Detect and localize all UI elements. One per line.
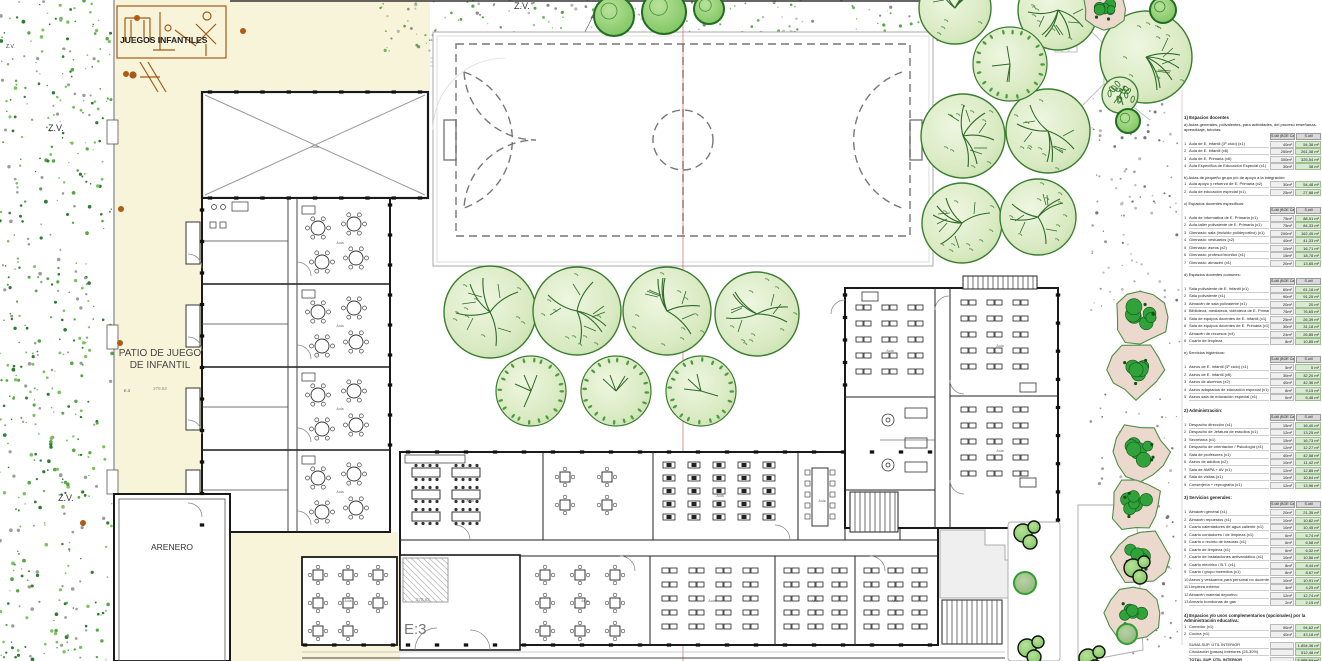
aula-room-label: Aula [336,407,343,411]
table-row: 1Aseos de E. Infantil (3º ciclo) (x1)5m²… [1184,364,1321,371]
table-cell-v2: 32,20 m² [1295,372,1321,379]
table-cell-lbl: Circulación (pasos) interiores (25-30%) [1189,649,1269,656]
table-cell-lbl: Aula de informática de E. Primaria (x1) [1189,215,1269,222]
arenero-label: ARENERO [151,542,193,552]
table-cell-v2: 61,18 m² [1295,286,1321,293]
table-cell-v1: 15m² [1270,437,1294,444]
table-cell-lbl: Aula-taller polivalente de E. Primaria (… [1189,222,1269,229]
zv-label-north: Z.V. [514,1,530,11]
table-header-row: S.útil (BOE Cant.)S.útil [1184,356,1321,363]
zv-label-west-bottom: Z.V. [58,493,74,503]
table-cell-n: 4 [1184,163,1188,170]
table-cell-n: 2 [1184,222,1188,229]
table-section-title: 4) Espacios y/o usos complementarios (op… [1184,613,1321,623]
site-plan-drawing: AulaAulaAulaAulaAulaAulaAulaAulaAulaAula… [0,0,1322,661]
table-cell-n: 1 [1184,286,1188,293]
table-cell-n: 1 [1184,624,1188,631]
table-cell-v1: 60m² [1270,286,1294,293]
table-cell-v2: 6,74 m² [1295,532,1321,539]
table-cell-n: 10 [1184,577,1188,584]
table-cell-lbl: TOTAL SUP. ÚTIL INTERIOR [1189,657,1269,661]
table-row: 1Aula apoyo y refuerzo de E. Primaria (x… [1184,181,1321,188]
aula-room-label: Aula [996,344,1003,348]
table-cell-v1: 15m² [1270,252,1294,259]
table-cell-v2: 26,85 m² [1295,331,1321,338]
table-cell-n: 1 [1184,215,1188,222]
table-header-col1: S.útil (BOE Cant.) [1270,356,1295,363]
table-cell-v1 [1270,642,1294,649]
table-row: 1Comedor (x1)90m²94,62 m² [1184,624,1321,631]
table-cell-lbl: Gimnasio: vestuarios (x2) [1189,237,1269,244]
table-cell-v1 [1270,649,1294,656]
aula-room-label: Aula [708,599,715,603]
table-cell-v1: 8m² [1270,387,1294,394]
table-cell-lbl: Sala de equipos docentes de E. Primaria … [1189,323,1269,330]
patio-label-line2: DE INFANTIL [130,360,191,371]
table-cell-lbl: Despacho dirección (x1) [1189,422,1269,429]
table-row: 1Almacén general (x1)20m²21,35 m² [1184,509,1321,516]
table-cell-v1: 24m² [1270,331,1294,338]
table-header-col2: S.útil [1296,414,1321,421]
table-cell-lbl: Almacén de recursos (x4) [1189,331,1269,338]
table-cell-v1: 6m² [1270,547,1294,554]
table-cell-v2: 325,54 m² [1295,156,1321,163]
table-header-row: S.útil (BOE Cant.)S.útil [1184,501,1321,508]
table-row: 1Aula de E. Infantil (3º ciclo) (x1)40m²… [1184,141,1321,148]
table-cell-v2: 12,74 m² [1295,592,1321,599]
table-row: 5Cuarto o recinto de basuras (x1)6m²6,58… [1184,539,1321,546]
table-cell-lbl: Aseos sala de educación especial (x1) [1189,394,1269,401]
table-cell-lbl: Gimnasio: sala (incluido polideportivo) … [1189,230,1269,237]
table-cell-v2: 1.854,36 m² [1295,642,1321,649]
table-cell-lbl: Gimnasio: aseos (x2) [1189,245,1269,252]
table-cell-v2: 42,58 m² [1295,452,1321,459]
table-header-col1: S.útil (BOE Cant.) [1270,278,1295,285]
table-cell-lbl: Conserjería + reprografía (x1) [1189,482,1269,489]
table-cell-v2: 18,78 m² [1295,252,1321,259]
table-cell-lbl: Cuarto contadores / de limpieza (x1) [1189,532,1269,539]
table-cell-lbl: Almacén de sala polivalente (x1) [1189,301,1269,308]
table-cell-n: 8 [1184,562,1188,569]
table-cell-n: 4 [1184,237,1188,244]
table-row: 3Secretaría (x1)15m²16,73 m² [1184,437,1321,444]
table-row: 3Aseos de alumnos (x2)40m²42,36 m² [1184,379,1321,386]
table-row: 7Almacén de recursos (x4)24m²26,85 m² [1184,331,1321,338]
table-cell-lbl: Cuarto de instalaciones antivandálico (x… [1189,554,1269,561]
table-cell-n: 3 [1184,230,1188,237]
table-row: 8Sala de visitas (x1)10m²10,64 m² [1184,474,1321,481]
table-cell-v1: 8m² [1270,338,1294,345]
table-cell-n: 5 [1184,245,1188,252]
table-cell-lbl: Aula de E. Infantil (3º ciclo) (x1) [1189,141,1269,148]
aula-room-label: Aula [311,145,318,149]
table-header-row: S.útil (BOE Cant.)S.útil [1184,278,1321,285]
table-subsection-title: d) Espacios docentes comunes: [1184,272,1321,277]
table-cell-lbl: Aseos de E. Infantil (x6) [1189,372,1269,379]
table-row: 2Aseos de E. Infantil (x6)30m²32,20 m² [1184,372,1321,379]
zv-label-west-top: Z.V. [48,123,64,133]
table-row: 8Cuarto eléctrico / B.T. (x1)8m²8,44 m² [1184,562,1321,569]
scale-label: E:3 [404,621,427,638]
table-cell-lbl: Gimnasio: profesor/monitor (x1) [1189,252,1269,259]
table-cell-v2: 6,58 m² [1295,539,1321,546]
table-cell-v1: 200m² [1270,230,1294,237]
table-cell-v2: 13,65 m² [1295,260,1321,267]
table-subsection-title: a) Aulas generales, polivalentes, para a… [1184,122,1321,132]
table-cell-v1: 250m² [1270,148,1294,155]
table-row: Circulación (pasos) interiores (25-30%)5… [1184,649,1321,656]
table-header-col1: S.útil (BOE Cant.) [1270,133,1295,140]
table-header-col2: S.útil [1296,501,1321,508]
table-header-row: S.útil (BOE Cant.)S.útil [1184,414,1321,421]
table-subsection-title: e) Servicios higiénicos: [1184,350,1321,355]
table-row: 2Sala polivalente (x1)90m²91,25 m² [1184,293,1321,300]
table-row: 12Almacén material deportivo12m²12,74 m² [1184,592,1321,599]
table-cell-v2: 10,64 m² [1295,474,1321,481]
table-cell-v2: 41,33 m² [1295,237,1321,244]
table-cell-v2: 27,88 m² [1295,189,1321,196]
table-cell-v1: 6m² [1270,539,1294,546]
table-cell-n: 7 [1184,554,1188,561]
table-cell-lbl: Aseos de E. Infantil (3º ciclo) (x1) [1189,364,1269,371]
patio-label-line1: PATIO DE JUEGO [119,348,202,359]
patio-area-value: 278.63 [153,386,167,391]
table-cell-n: 2 [1184,517,1188,524]
fence-post [107,470,118,494]
table-cell-v1: 75m² [1270,308,1294,315]
table-cell-n: 8 [1184,474,1188,481]
table-cell-lbl: Sala polivalente de E. Infantil (x1) [1189,286,1269,293]
table-cell-v2: 88,91 m² [1295,215,1321,222]
table-cell-n: 6 [1184,323,1188,330]
juegos-infantiles-label: JUEGOS INFANTILES [120,35,208,45]
aula-room-label: Aula [581,599,588,603]
table-row: 4Aseos adaptados de educación especial (… [1184,387,1321,394]
table-cell-n: 2 [1184,372,1188,379]
table-row: 9Cuarto / grupo incendios (x1)8m²8,67 m² [1184,569,1321,576]
table-cell-n: 9 [1184,569,1188,576]
aula-room-label: Aula [811,599,818,603]
table-cell-n: 6 [1184,547,1188,554]
table-cell-v2: 16,40 m² [1295,422,1321,429]
table-cell-v2: 94,62 m² [1295,624,1321,631]
table-row: 1Despacho dirección (x1)15m²16,40 m² [1184,422,1321,429]
table-header-col2: S.útil [1296,356,1321,363]
table-cell-lbl: Armario bombonas de gas [1189,599,1269,606]
table-cell-v2: 76,65 m² [1295,308,1321,315]
table-cell-v1: 12m² [1270,467,1294,474]
e3-small-mark: E.3 [124,388,131,393]
table-cell-v2: 2,15 m² [1295,599,1321,606]
table-cell-n: 1 [1184,422,1188,429]
table-cell-lbl: Gimnasio: almacén (x1) [1189,260,1269,267]
table-cell-v2: 21,35 m² [1295,509,1321,516]
table-row: 7Gimnasio: almacén (x1)20m²13,65 m² [1184,260,1321,267]
table-row: 13Armario bombonas de gas2m²2,15 m² [1184,599,1321,606]
table-cell-v2: 13,96 m² [1295,482,1321,489]
table-cell-lbl: Almacén general (x1) [1189,509,1269,516]
table-cell-n: 6 [1184,252,1188,259]
aula-room-label: Aula [716,494,723,498]
arenero-sandbox [114,494,230,661]
table-row: 6Sala de equipos docentes de E. Primaria… [1184,323,1321,330]
program-table: 1) Espacios docentesa) Aulas generales, … [1184,112,1321,661]
table-cell-v2: 26,39 m² [1295,316,1321,323]
table-cell-lbl: Aula de E. Primaria (x6) [1189,156,1269,163]
table-cell-n: 5 [1184,394,1188,401]
table-row: 2Aula de E. Infantil (x6)250m²261,38 m² [1184,148,1321,155]
table-cell-v1: 40m² [1270,237,1294,244]
table-cell-v2: 12,27 m² [1295,444,1321,451]
table-cell-v2: 10,45 m² [1295,524,1321,531]
zv-label-nw: Z.V. [6,44,15,50]
table-cell-lbl: Cuarto de limpieza (x1) [1189,547,1269,554]
table-cell-v2: 84,33 m² [1295,222,1321,229]
table-cell-n: 9 [1184,482,1188,489]
table-cell-lbl: Despacho de Jefatura de estudios (x1) [1189,429,1269,436]
table-row: 4Aula Específica de Educación Especial (… [1184,163,1321,170]
table-section-title: 2) Administración: [1184,408,1321,413]
table-row: 6Aseos de adultos (x2)10m²11,42 m² [1184,459,1321,466]
table-row: 2Aula-taller polivalente de E. Primaria … [1184,222,1321,229]
table-cell-n [1184,642,1188,649]
aula-room-label: Aula [336,490,343,494]
table-row: 6Cuarto de limpieza (x1)6m²6,32 m² [1184,547,1321,554]
table-cell-v1: 20m² [1270,260,1294,267]
table-cell-v2: 16,71 m² [1295,245,1321,252]
table-cell-lbl: Limpieza exterior [1189,584,1269,591]
table-row: 9Conserjería + reprografía (x1)12m²13,96… [1184,482,1321,489]
table-cell-v2: 54,38 m² [1295,141,1321,148]
table-cell-v2: 43,18 m² [1295,631,1321,638]
table-header-col1: S.útil (BOE Cant.) [1270,501,1295,508]
aula-room-label: Aula [336,241,343,245]
table-cell-v2: 4,25 m² [1295,584,1321,591]
table-cell-v1: 40m² [1270,141,1294,148]
table-cell-v2: 38 m² [1295,163,1321,170]
table-cell-n [1184,657,1188,661]
table-cell-v1: 12m² [1270,592,1294,599]
table-cell-lbl: Aula de E. Infantil (x6) [1189,148,1269,155]
table-cell-v2: 10,85 m² [1295,338,1321,345]
table-cell-lbl: Sala de visitas (x1) [1189,474,1269,481]
table-cell-v1: 10m² [1270,474,1294,481]
table-cell-n: 4 [1184,532,1188,539]
table-cell-lbl: Almacén repuestos (x1) [1189,517,1269,524]
table-cell-n: 1 [1184,364,1188,371]
table-row: 2Despacho de Jefatura de estudios (x1)12… [1184,429,1321,436]
table-row: 8Cuarto de limpieza8m²10,85 m² [1184,338,1321,345]
table-cell-v2: 20 m² [1295,301,1321,308]
table-cell-v1: 6m² [1270,532,1294,539]
table-cell-v1 [1270,657,1294,661]
table-row: 5Gimnasio: aseos (x2)10m²16,71 m² [1184,245,1321,252]
table-cell-lbl: Sala de AMPA + AV (x1) [1189,467,1269,474]
table-row: 10Aseos y vestuarios para personal no do… [1184,577,1321,584]
table-cell-v1: 40m² [1270,379,1294,386]
table-cell-lbl: Aseos de alumnos (x2) [1189,379,1269,386]
table-cell-n: 2 [1184,148,1188,155]
table-cell-v1: 8m² [1270,562,1294,569]
table-cell-v1: 10m² [1270,524,1294,531]
table-cell-lbl: Aseos de adultos (x2) [1189,459,1269,466]
table-cell-n: 4 [1184,308,1188,315]
aula-room-label: Aula [886,349,893,353]
table-cell-v1: 40m² [1270,631,1294,638]
aula-room-label: Aula [344,599,351,603]
table-cell-v2: 42,36 m² [1295,379,1321,386]
table-cell-v1: 25m² [1270,316,1294,323]
table-row: 3Cuarto calentadores de agua caliente (x… [1184,524,1321,531]
table-cell-n: 1 [1184,509,1188,516]
table-cell-v1: 8m² [1270,569,1294,576]
table-cell-v1: 6m² [1270,394,1294,401]
table-row: 4Gimnasio: vestuarios (x2)40m²41,33 m² [1184,237,1321,244]
table-cell-n: 3 [1184,524,1188,531]
table-cell-v2: 10,82 m² [1295,517,1321,524]
table-cell-v1: 10m² [1270,577,1294,584]
table-cell-n: 7 [1184,467,1188,474]
table-row: 7Cuarto de instalaciones antivandálico (… [1184,554,1321,561]
table-row: 7Sala de AMPA + AV (x1)12m²12,85 m² [1184,467,1321,474]
table-cell-n: 7 [1184,331,1188,338]
table-cell-v1: 10m² [1270,459,1294,466]
table-cell-n: 3 [1184,301,1188,308]
table-header-col2: S.útil [1296,133,1321,140]
table-header-col1: S.útil (BOE Cant.) [1270,414,1295,421]
table-cell-lbl: Sala de profesores (x1) [1189,452,1269,459]
table-cell-lbl: Comedor (x1) [1189,624,1269,631]
table-cell-lbl: Almacén material deportivo [1189,592,1269,599]
aula-room-label: Aula [891,599,898,603]
table-cell-v1: 12m² [1270,482,1294,489]
table-cell-v2: 2.366,84 m² [1295,657,1321,661]
table-cell-n: 12 [1184,592,1188,599]
table-cell-v1: 12m² [1270,444,1294,451]
site-plan-sheet: AulaAulaAulaAulaAulaAulaAulaAulaAulaAula… [0,0,1322,661]
table-row: 5Sala de equipos docentes de E. Infantil… [1184,316,1321,323]
table-cell-v1: 15m² [1270,422,1294,429]
table-cell-lbl: Aseos y vestuarios para personal no doce… [1189,577,1269,584]
table-cell-v1: 20m² [1270,301,1294,308]
table-row: 4Cuarto contadores / de limpieza (x1)6m²… [1184,532,1321,539]
table-row: TOTAL SUP. ÚTIL INTERIOR2.366,84 m² [1184,657,1321,661]
table-cell-v1: 75m² [1270,215,1294,222]
table-cell-v2: 16,73 m² [1295,437,1321,444]
table-header-col2: S.útil [1296,207,1321,214]
table-row: 1Aula de informática de E. Primaria (x1)… [1184,215,1321,222]
table-cell-lbl: Biblioteca, mediateca, videoteca de E. P… [1189,308,1269,315]
table-cell-v2: 8,67 m² [1295,569,1321,576]
table-cell-n [1184,649,1188,656]
table-cell-n: 3 [1184,156,1188,163]
table-subsection-title: b) Aulas de pequeño grupo y/o de apoyo a… [1184,175,1321,180]
table-cell-lbl: Cuarto calentadores de agua caliente (x1… [1189,524,1269,531]
aula-room-label: Aula [336,324,343,328]
table-cell-v2: 10,56 m² [1295,554,1321,561]
table-cell-n: 2 [1184,631,1188,638]
table-row: 2Almacén repuestos (x1)10m²10,82 m² [1184,517,1321,524]
table-cell-v1: 12m² [1270,429,1294,436]
table-row: 6Gimnasio: profesor/monitor (x1)15m²18,7… [1184,252,1321,259]
table-cell-v2: 5 m² [1295,364,1321,371]
table-row: 4Biblioteca, mediateca, videoteca de E. … [1184,308,1321,315]
table-cell-v2: 9,15 m² [1295,387,1321,394]
table-cell-n: 5 [1184,539,1188,546]
table-cell-v2: 6,48 m² [1295,394,1321,401]
table-cell-n: 4 [1184,444,1188,451]
table-cell-v1: 4m² [1270,584,1294,591]
table-row: 2Cocina (x1)40m²43,18 m² [1184,631,1321,638]
table-cell-lbl: Aseos adaptados de educación especial (x… [1189,387,1269,394]
table-cell-n: 3 [1184,379,1188,386]
entrance-area-value: 278.63 [416,597,430,602]
table-cell-v2: 31,18 m² [1295,323,1321,330]
aula-room-label: Aula [466,499,473,503]
table-row: 1Sala polivalente de E. Infantil (x1)60m… [1184,286,1321,293]
table-cell-n: 8 [1184,338,1188,345]
table-cell-n: 5 [1184,316,1188,323]
fence-post [107,325,118,349]
table-row: 11Limpieza exterior4m²4,25 m² [1184,584,1321,591]
table-cell-n: 3 [1184,437,1188,444]
table-cell-v1: 30m² [1270,181,1294,188]
table-cell-lbl: Aula Específica de Educación Especial (x… [1189,163,1269,170]
table-cell-v2: 512,48 m² [1295,649,1321,656]
table-cell-v1: 5m² [1270,364,1294,371]
table-cell-lbl: Cuarto / grupo incendios (x1) [1189,569,1269,576]
table-row: 5Aseos sala de educación especial (x1)6m… [1184,394,1321,401]
fence-post [107,120,118,144]
table-section-title: 1) Espacios docentes [1184,115,1321,120]
table-subsection-title: c) Espacios docentes específicos: [1184,201,1321,206]
table-row: 3Gimnasio: sala (incluido polideportivo)… [1184,230,1321,237]
table-cell-v1: 75m² [1270,222,1294,229]
aula-room-label: Aula [996,449,1003,453]
table-cell-v2: 6,32 m² [1295,547,1321,554]
table-cell-v1: 2m² [1270,599,1294,606]
table-header-row: S.útil (BOE Cant.)S.útil [1184,207,1321,214]
table-cell-v1: 30m² [1270,163,1294,170]
table-cell-lbl: Cuarto de limpieza [1189,338,1269,345]
table-cell-n: 2 [1184,189,1188,196]
table-cell-n: 5 [1184,452,1188,459]
table-cell-v1: 40m² [1270,452,1294,459]
table-cell-v2: 11,42 m² [1295,459,1321,466]
table-cell-v1: 10m² [1270,517,1294,524]
table-cell-lbl: Cuarto o recinto de basuras (x1) [1189,539,1269,546]
table-row: 2Aula de educación especial (x1)25m²27,8… [1184,189,1321,196]
table-cell-v1: 90m² [1270,624,1294,631]
table-cell-n: 1 [1184,181,1188,188]
table-row: 3Almacén de sala polivalente (x1)20m²20 … [1184,301,1321,308]
table-cell-lbl: Cuarto eléctrico / B.T. (x1) [1189,562,1269,569]
table-cell-v1: 300m² [1270,156,1294,163]
table-cell-v1: 20m² [1270,509,1294,516]
table-cell-lbl: Sala polivalente (x1) [1189,293,1269,300]
table-row: 4Despacho de orientación / Psicología (x… [1184,444,1321,451]
table-cell-v1: 90m² [1270,293,1294,300]
table-cell-v1: 10m² [1270,245,1294,252]
table-header-col1: S.útil (BOE Cant.) [1270,207,1295,214]
aula-room-label: Aula [818,499,825,503]
table-cell-lbl: Sala de equipos docentes de E. Infantil … [1189,316,1269,323]
table-cell-v1: 30m² [1270,372,1294,379]
table-cell-lbl: Aula apoyo y refuerzo de E. Primaria (x2… [1189,181,1269,188]
table-cell-n: 6 [1184,459,1188,466]
table-row: 3Aula de E. Primaria (x6)300m²325,54 m² [1184,156,1321,163]
table-cell-lbl: Despacho de orientación / Psicología (x1… [1189,444,1269,451]
